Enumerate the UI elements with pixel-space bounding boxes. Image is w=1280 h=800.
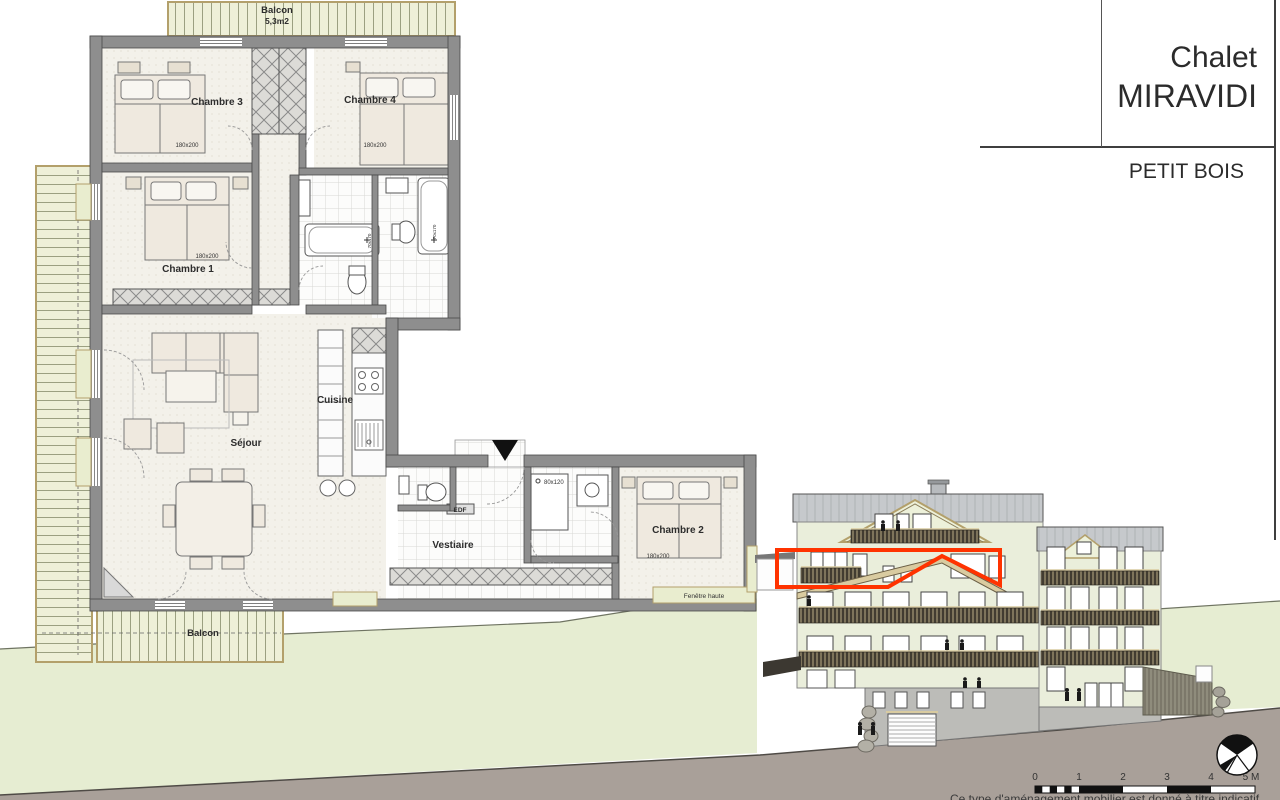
bed-chambre2: [622, 477, 737, 558]
armchair-2: [157, 423, 184, 453]
label-vestiaire: Vestiaire: [432, 540, 474, 551]
title-block: Chalet MIRAVIDI: [1000, 40, 1257, 116]
wall-bath1-left: [290, 175, 299, 305]
closet-column-1: [252, 48, 279, 134]
armchair-1: [124, 419, 151, 449]
scale-tick-0: 0: [1032, 772, 1038, 783]
washer: [577, 475, 608, 506]
balcony-rail: [1041, 571, 1159, 585]
disclaimer-caption: Ce type d'aménagement mobilier est donné…: [950, 792, 1280, 800]
attic-balcony-rail: [851, 530, 979, 543]
chambre1-wardrobe: [113, 289, 290, 305]
wall-wc-vert: [450, 467, 456, 511]
washbasin: [386, 178, 408, 193]
label-cuisine: Cuisine: [317, 395, 354, 406]
balcony-rail: [1041, 611, 1159, 625]
wall-corridor-left: [252, 134, 259, 305]
scale-tick-2: 2: [1120, 772, 1126, 783]
window-sill-4: [333, 592, 377, 606]
title-divider: [980, 146, 1275, 148]
floor-plan-drawing: Balcon 5,3m2 Chambre 3 Chambre 4 Chambre…: [0, 0, 770, 800]
window-sill-3: [76, 438, 91, 486]
left-building: [763, 480, 1043, 752]
sink-unit: [355, 420, 383, 450]
tub-size-2: 70x170: [432, 224, 437, 239]
balcony-rail: [799, 608, 1043, 623]
scale-bar: 0 1 2 3 4 5 M: [1032, 772, 1259, 793]
wall-wc: [398, 505, 454, 511]
balcony-left: [36, 166, 92, 662]
label-chambre3: Chambre 3: [191, 97, 243, 108]
wall-shower-vest: [524, 467, 531, 563]
bed-size-ch4: 180x200: [363, 143, 387, 149]
balcony-top: [168, 2, 455, 36]
bed-size-ch3: 180x200: [175, 143, 199, 149]
bed-chambre4: [346, 62, 448, 165]
project-title: Chalet: [1000, 40, 1257, 76]
wall-wing-top-left: [386, 455, 488, 467]
balcony-rail: [1041, 651, 1159, 665]
sheet-border-right: [1274, 0, 1276, 540]
label-chambre4: Chambre 4: [344, 95, 396, 106]
edf-label: EDF: [454, 507, 467, 514]
elevation-drawing: 0 1 2 3 4 5 M: [755, 430, 1280, 800]
toilet-3: [426, 483, 446, 501]
label-chambre1: Chambre 1: [162, 264, 214, 275]
vestiaire-wardrobe: [390, 568, 613, 585]
wall-bath-divider: [372, 175, 378, 305]
wall-ch2-left: [612, 467, 619, 599]
label-balcon-top: Balcon: [261, 5, 293, 16]
scale-tick-3: 3: [1164, 772, 1170, 783]
label-balcon-top-area: 5,3m2: [265, 16, 289, 26]
wall-sejour-top-a: [102, 305, 252, 314]
scale-tick-4: 4: [1208, 772, 1214, 783]
project-subtitle: PETIT BOIS: [1000, 160, 1244, 184]
fence-post: [1196, 666, 1212, 682]
side-awning: [763, 656, 801, 677]
rocks: [1212, 687, 1230, 717]
project-name: MIRAVIDI: [1000, 76, 1257, 116]
kitchen-counter: [352, 353, 386, 476]
side-table: [233, 412, 248, 425]
wall-right-top-block: [448, 36, 460, 330]
closet-column-2: [279, 48, 306, 134]
wall-ch3-ch1: [102, 163, 252, 172]
wall-left: [90, 36, 102, 611]
wall-top: [90, 36, 460, 48]
north-compass-icon: [1217, 735, 1257, 775]
title-border-left: [1101, 0, 1102, 147]
wall-mid-right: [386, 318, 398, 467]
wall-shower-bottom: [531, 556, 618, 563]
small-sink: [399, 476, 409, 494]
attic-window: [989, 556, 1005, 578]
scale-tick-1: 1: [1076, 772, 1082, 783]
label-sejour: Séjour: [230, 438, 261, 449]
window-sill-2: [76, 350, 91, 398]
tub-size-1: 70x170: [367, 233, 372, 248]
shower-size: 80x120: [544, 480, 564, 486]
balcony-rail: [799, 652, 1043, 667]
wall-ch4-bath: [299, 168, 448, 175]
label-balcon-bottom: Balcon: [187, 628, 219, 639]
attic-window: [1077, 542, 1091, 554]
wall-sejour-top-b: [306, 305, 386, 314]
label-chambre2: Chambre 2: [652, 525, 704, 536]
wall-wing-top-right: [524, 455, 756, 467]
stove: [355, 368, 383, 394]
window-sill-1: [76, 184, 91, 220]
fridge-unit: [352, 328, 386, 353]
bed-size-ch2: 180x200: [646, 554, 670, 560]
dining-set: [163, 469, 265, 569]
plan-sheet: Balcon 5,3m2 Chambre 3 Chambre 4 Chambre…: [0, 0, 1280, 800]
coffee-table: [166, 371, 216, 402]
label-fenetre-haute: Fenêtre haute: [684, 593, 725, 600]
bed-size-ch1: 180x200: [195, 254, 219, 260]
